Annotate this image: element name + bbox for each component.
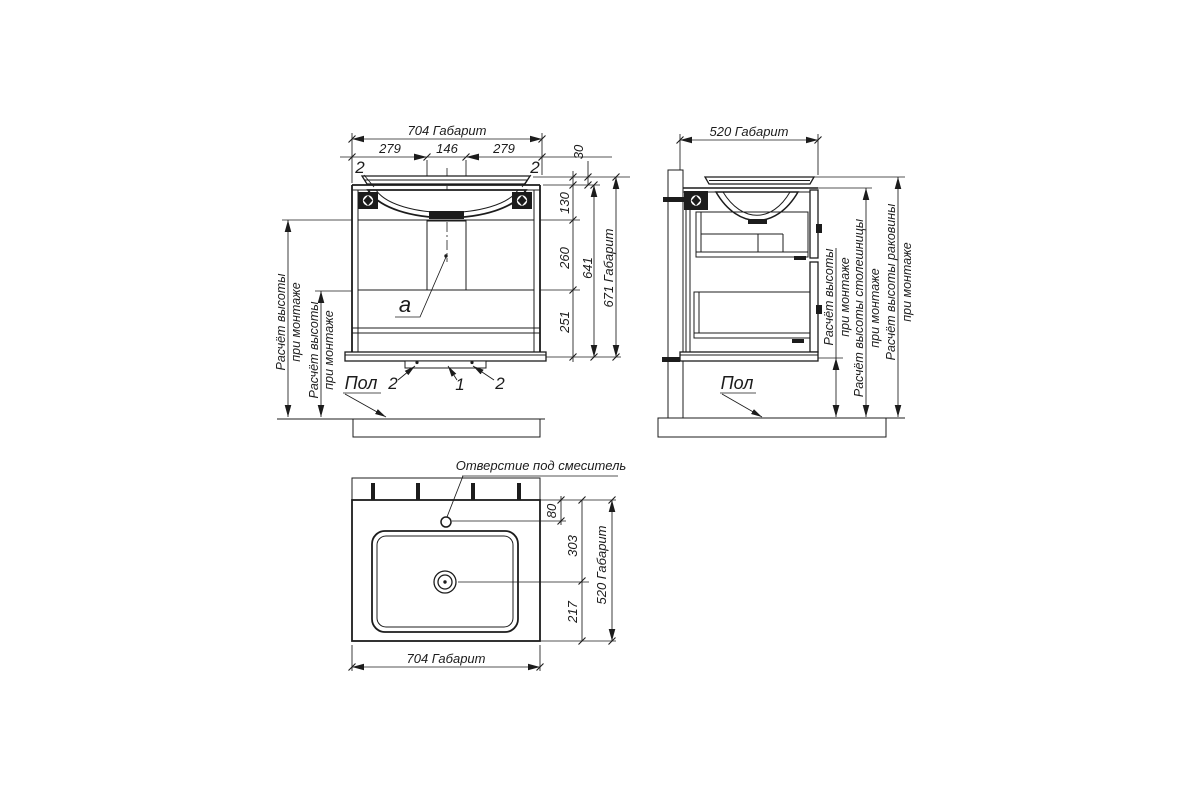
front-dimensions-right: 30 130 260 251 641 671 Габарит (533, 144, 630, 362)
front-dim-middle: 260 (557, 246, 572, 269)
front-ext-146 (427, 160, 466, 177)
side-note-height-text1: Расчёт высоты (822, 249, 836, 346)
side-clip-upper (816, 224, 822, 233)
side-back-panel (686, 192, 690, 352)
side-note-height-text2: при монтаже (838, 257, 852, 336)
front-drain-slot (429, 211, 464, 219)
side-floor (658, 418, 905, 437)
side-cabinet (662, 177, 822, 362)
plan-mixer-hole-label: Отверстие под смеситель (456, 458, 627, 473)
side-wall-bracket (663, 191, 708, 210)
side-view: 520 Габарит (658, 124, 914, 437)
front-shelf-lines (352, 220, 540, 333)
plan-view: Отверстие под смеситель 80 303 217 520 Г… (349, 458, 627, 671)
front-dim-width-center: 146 (436, 141, 458, 156)
front-mount-notes: Расчёт высоты при монтаже Расчёт высоты … (274, 220, 352, 417)
side-dim-overall-depth: 520 Габарит (709, 124, 788, 139)
technical-drawing-canvas: 704 Габарит 279 146 279 (0, 0, 1189, 800)
plan-dim-drain-to-front: 217 (565, 600, 580, 623)
front-panel-label: a (399, 292, 411, 317)
front-dim-width-left: 279 (378, 141, 401, 156)
vanity-drawing: 704 Габарит 279 146 279 (0, 0, 1189, 800)
front-dim-overall-width: 704 Габарит (407, 123, 486, 138)
front-floor (277, 419, 545, 437)
side-floor-callout: Пол (720, 373, 762, 417)
side-sink-bowl (716, 192, 798, 221)
front-note1-text2: при монтаже (289, 282, 303, 361)
front-note2-text1: Расчёт высоты (307, 302, 321, 399)
front-plinth-point-left (415, 361, 418, 364)
plan-dim-overall-depth: 520 Габарит (594, 525, 609, 604)
front-callout-top-left: 2 (354, 158, 365, 177)
side-slide-stop-upper (794, 256, 806, 260)
side-floor-label-leader (722, 394, 762, 417)
side-note-countertop-text2: при монтаже (868, 268, 882, 347)
side-floor-anchor (662, 357, 680, 362)
plan-wall-hatch (352, 478, 540, 500)
side-note-sink-text2: при монтаже (900, 242, 914, 321)
front-dim-rim-height: 30 (571, 144, 586, 159)
front-floor-label: Пол (345, 373, 378, 393)
side-floor-hatch (658, 418, 886, 437)
front-note2-text2: при монтаже (322, 310, 336, 389)
side-wall (668, 170, 683, 418)
front-note1-text1: Расчёт высоты (274, 274, 288, 371)
side-note-sink-text1: Расчёт высоты раковины (884, 204, 898, 361)
side-drawer-lower (694, 292, 810, 338)
front-bottom-plate (345, 352, 546, 361)
front-bracket-left (358, 192, 378, 209)
side-floor-label: Пол (721, 373, 754, 393)
front-dim-overall-height: 671 Габарит (601, 228, 616, 307)
side-bottom-plate (680, 352, 818, 361)
side-slide-stop-lower (792, 339, 804, 343)
plan-dim-hole-offset: 80 (544, 503, 559, 518)
plan-dim-back-to-drain: 303 (565, 534, 580, 556)
front-callout-bottom-left: 2 (387, 374, 398, 393)
front-floor-label-leader (345, 394, 386, 417)
side-drain (748, 219, 767, 224)
front-callout-bottom-center: 1 (455, 375, 464, 394)
front-dim-width-right: 279 (492, 141, 515, 156)
front-callout-bottom-right: 2 (494, 374, 505, 393)
front-plinth-point-right (470, 361, 473, 364)
front-dim-carcass-height: 641 (580, 257, 595, 279)
front-cabinet (345, 168, 546, 368)
front-dim-lower: 251 (557, 311, 572, 334)
side-mount-notes: Расчёт высоты при монтаже Расчёт высоты … (814, 177, 914, 417)
front-floor-hatch (353, 419, 540, 437)
side-note-countertop-text1: Расчёт высоты столешницы (852, 219, 866, 397)
plan-wall-strip (352, 478, 540, 502)
front-dim-upper: 130 (557, 191, 572, 213)
plan-dim-overall-width: 704 Габарит (406, 651, 485, 666)
front-note-ext-lines (282, 220, 352, 291)
front-callout-top-right: 2 (529, 158, 540, 177)
front-view: 704 Габарит 279 146 279 (274, 123, 630, 437)
front-bracket-right (512, 192, 532, 209)
side-dimensions-top: 520 Габарит (677, 124, 822, 175)
